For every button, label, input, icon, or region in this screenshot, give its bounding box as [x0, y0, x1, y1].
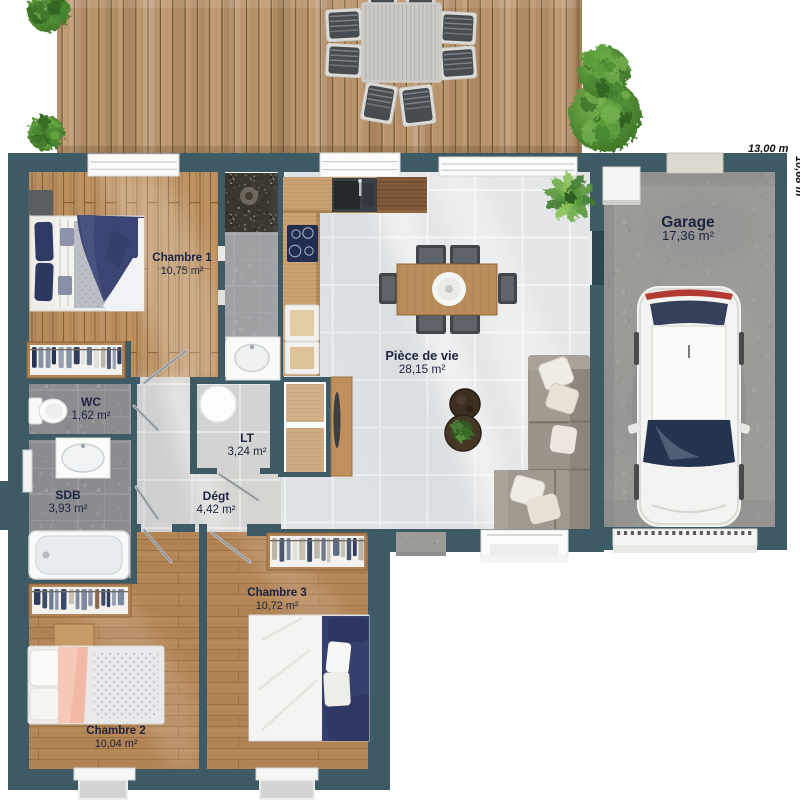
- svg-text:13,00 m: 13,00 m: [748, 143, 789, 155]
- svg-text:17,36 m²: 17,36 m²: [662, 228, 715, 243]
- svg-text:Pièce de vie: Pièce de vie: [385, 348, 458, 363]
- svg-text:10,72 m²: 10,72 m²: [256, 600, 299, 612]
- svg-text:SDB: SDB: [55, 488, 81, 502]
- svg-text:Dégt: Dégt: [203, 489, 230, 503]
- svg-text:10,75 m²: 10,75 m²: [161, 265, 204, 277]
- svg-text:3,24 m²: 3,24 m²: [228, 446, 267, 458]
- svg-text:WC: WC: [81, 395, 101, 409]
- svg-text:4,42 m²: 4,42 m²: [197, 504, 236, 516]
- svg-text:Chambre 1: Chambre 1: [152, 252, 212, 264]
- svg-text:10,68 m: 10,68 m: [793, 156, 800, 197]
- svg-text:10,04 m²: 10,04 m²: [95, 738, 138, 750]
- svg-text:Chambre 2: Chambre 2: [86, 725, 145, 737]
- svg-text:Chambre 3: Chambre 3: [247, 587, 306, 599]
- svg-text:28,15 m²: 28,15 m²: [399, 362, 446, 376]
- svg-text:3,93 m²: 3,93 m²: [49, 503, 88, 515]
- svg-text:1,62 m²: 1,62 m²: [72, 410, 111, 422]
- svg-text:LT: LT: [240, 431, 254, 445]
